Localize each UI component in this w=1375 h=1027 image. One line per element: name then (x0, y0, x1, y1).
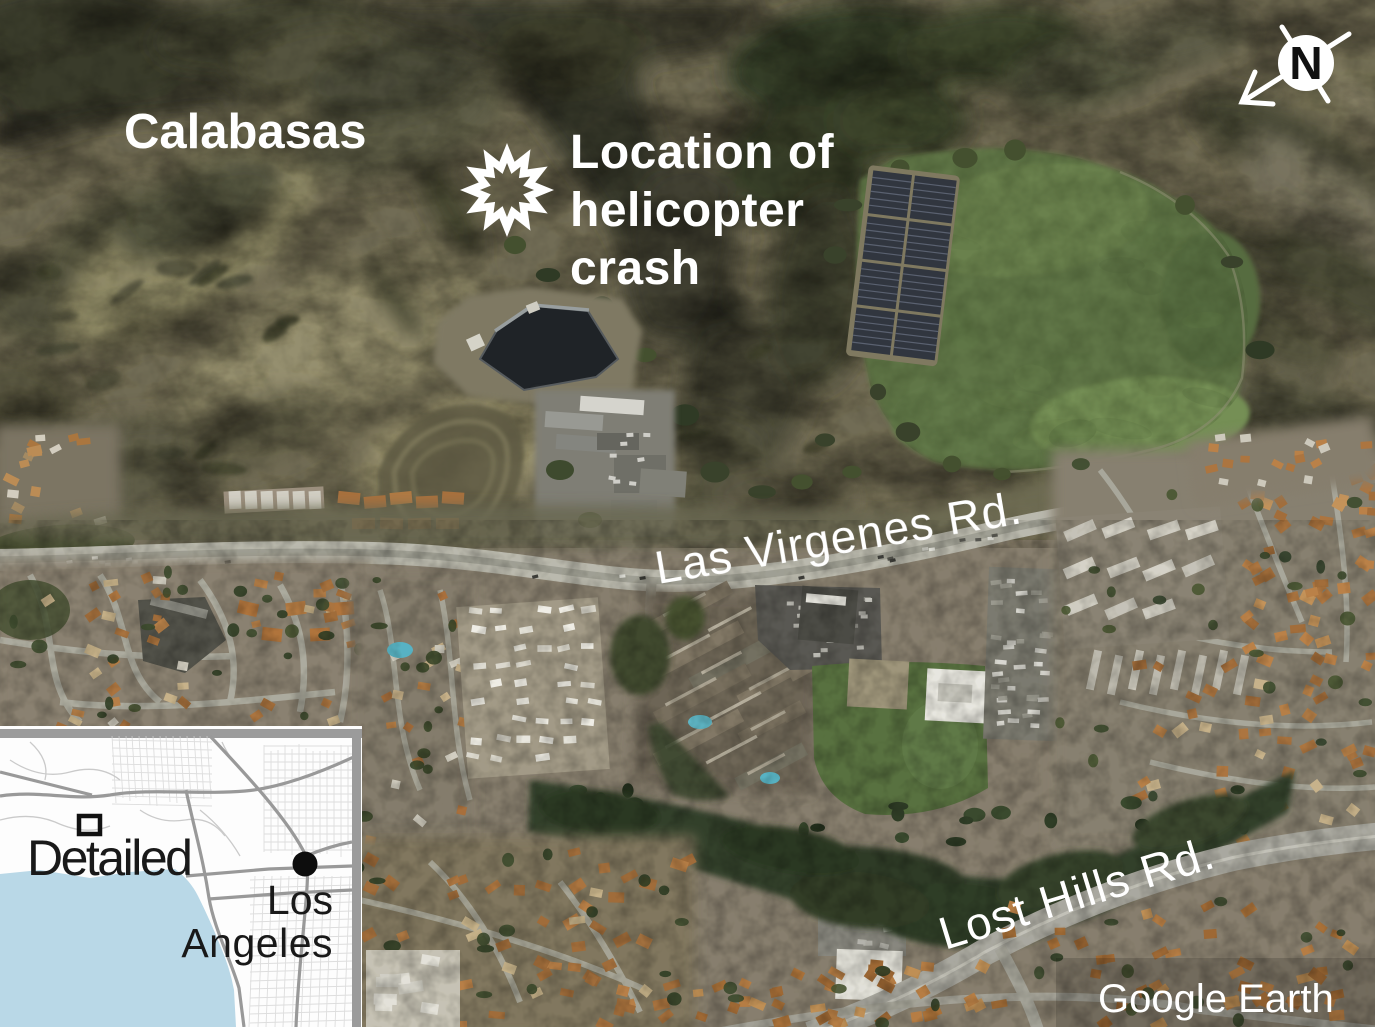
svg-text:N: N (1289, 37, 1322, 89)
svg-text:Calabasas: Calabasas (124, 105, 366, 159)
svg-text:Angeles: Angeles (181, 920, 333, 966)
svg-text:crash: crash (570, 242, 701, 295)
svg-text:Location of: Location of (570, 126, 835, 179)
svg-text:Google Earth: Google Earth (1098, 977, 1334, 1021)
svg-text:helicopter: helicopter (570, 184, 804, 237)
svg-text:Los: Los (267, 877, 333, 923)
svg-text:Detailed: Detailed (27, 830, 190, 886)
